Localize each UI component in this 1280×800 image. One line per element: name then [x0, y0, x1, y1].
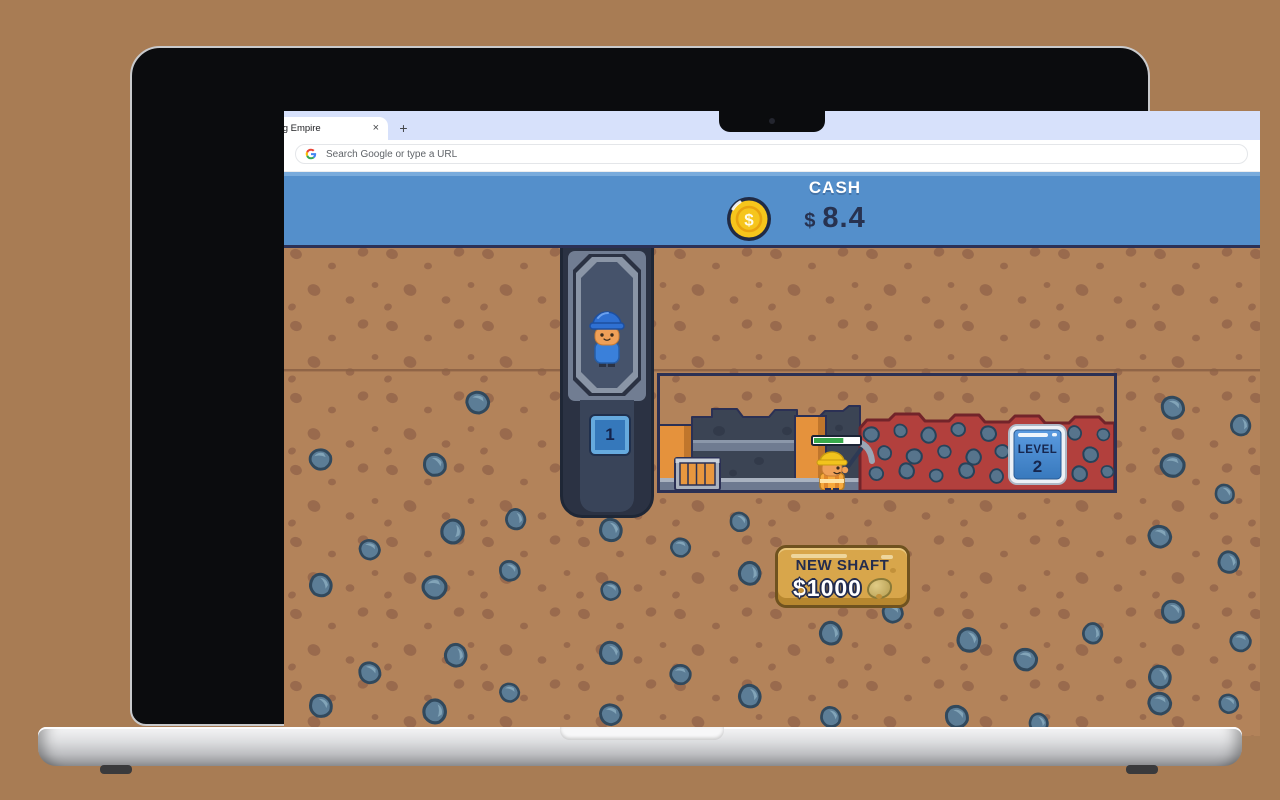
new-shaft-button[interactable]: NEW SHAFT $1000	[775, 545, 910, 608]
cash-value: $ 8.4	[771, 202, 899, 235]
button-highlight	[791, 554, 847, 558]
laptop-notch	[719, 111, 825, 132]
omnibox[interactable]	[295, 144, 1248, 164]
browser-toolbar	[284, 140, 1260, 172]
svg-text:2: 2	[1033, 457, 1042, 476]
coin-icon: $	[726, 196, 772, 242]
svg-text:LEVEL: LEVEL	[1018, 444, 1058, 456]
browser-window: Mining Empire × +	[284, 111, 1260, 736]
currency-symbol: $	[804, 210, 815, 233]
search-input[interactable]	[324, 148, 648, 161]
svg-text:$: $	[744, 211, 754, 230]
camera-icon	[769, 118, 775, 124]
shaft-number: 1	[605, 425, 614, 445]
laptop-foot	[100, 765, 132, 774]
lid-lift-notch	[560, 727, 724, 740]
tab-title: Mining Empire	[284, 117, 321, 140]
shaft-number-sign[interactable]: 1	[591, 416, 629, 454]
new-shaft-label: NEW SHAFT	[778, 557, 907, 574]
browser-tab[interactable]: Mining Empire ×	[284, 117, 388, 140]
cash-label: CASH	[779, 178, 891, 198]
level-sign[interactable]: LEVEL 2	[1008, 424, 1067, 485]
ore-vein	[860, 414, 1115, 491]
google-g-icon	[305, 148, 317, 160]
laptop-bezel: Mining Empire × +	[130, 46, 1150, 726]
cash-amount: 8.4	[822, 202, 865, 235]
mine-tunnel: LEVEL 2	[657, 373, 1117, 493]
game-viewport: $ CASH $ 8.4	[284, 172, 1260, 736]
button-highlight	[881, 555, 893, 559]
progress-fill	[814, 438, 843, 443]
laptop-base	[38, 727, 1242, 766]
laptop-foot	[1126, 765, 1158, 774]
close-tab-icon[interactable]: ×	[373, 117, 379, 140]
supply-crate	[675, 458, 720, 490]
new-tab-icon[interactable]: +	[394, 119, 413, 138]
mining-progress-bar	[812, 436, 861, 445]
cash-header: $ CASH $ 8.4	[284, 172, 1260, 248]
elevator-operator-character	[587, 306, 627, 370]
elevator-shaft: 1	[560, 245, 654, 518]
